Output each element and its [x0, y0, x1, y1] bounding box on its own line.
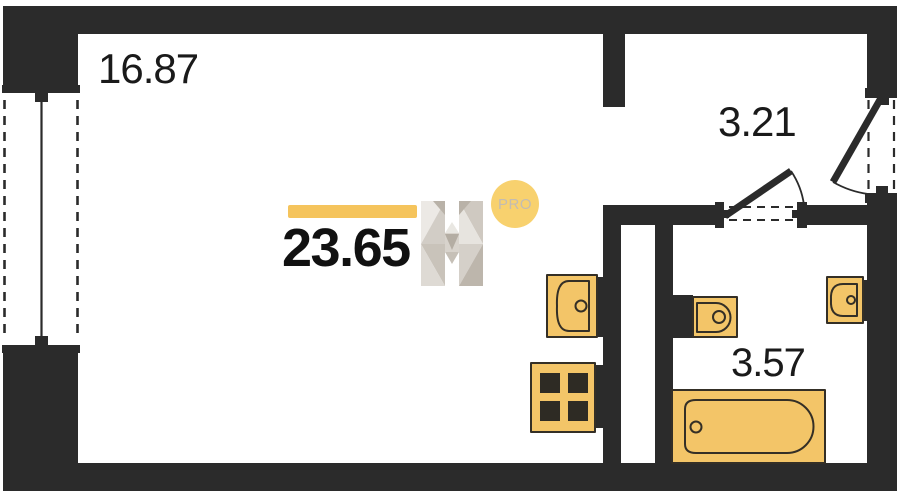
floor-plan: 16.87 3.21 3.57 23.65 PRO [0, 0, 900, 498]
total-area-label: 23.65 [282, 221, 410, 275]
living-room-area-label: 16.87 [98, 48, 198, 90]
fixtures [531, 275, 868, 463]
door-jamb-bottom [865, 193, 897, 203]
door-bathroom [715, 171, 807, 228]
wall-stub-top [603, 34, 625, 107]
stove-mount [595, 365, 604, 428]
window-sill-bottom [2, 345, 80, 353]
hallway-area-label: 3.21 [718, 101, 796, 143]
door-leaf [725, 171, 791, 216]
wall-right-upper [867, 6, 897, 88]
door-jamb-bottom-stop [876, 186, 888, 193]
wall-left-upper [3, 34, 78, 85]
bathroom-area-label: 3.57 [731, 343, 805, 383]
wall-top [3, 6, 897, 34]
stove-burner [540, 401, 560, 421]
window-handle-bottom [35, 336, 48, 345]
stove-burner [568, 401, 588, 421]
kitchen-sink-icon [547, 275, 604, 337]
logo-h-icon [421, 201, 483, 286]
stove-burner [540, 373, 560, 393]
toilet-cistern [671, 295, 693, 338]
wall-room-right [603, 205, 621, 463]
washbasin-icon [827, 277, 868, 323]
window-handle-top [35, 93, 48, 102]
door-jamb-right-stop [792, 210, 797, 218]
door-jamb-right [797, 202, 807, 228]
stove-burner [568, 373, 588, 393]
door-swing-arc [833, 182, 868, 194]
wall-bottom [3, 463, 897, 491]
pro-badge: PRO [491, 180, 539, 228]
window-sill-top [2, 85, 80, 93]
wall-hall-divider-right [807, 205, 868, 225]
window-left [2, 85, 80, 353]
door-leaf [833, 98, 881, 182]
wall-bathroom-left [655, 224, 673, 463]
wall-right-lower [867, 203, 897, 491]
bathtub-icon [672, 390, 825, 463]
door-jamb-left [715, 202, 724, 228]
accent-bar [288, 205, 417, 218]
toilet-icon [671, 295, 737, 338]
wall-left-lower [3, 353, 78, 463]
door-jamb-top [865, 88, 897, 98]
door-swing-arc [791, 171, 804, 205]
wall-hall-divider-left [603, 205, 716, 225]
door-entrance [833, 88, 897, 203]
stove-icon [531, 363, 604, 432]
pro-badge-label: PRO [498, 196, 532, 213]
